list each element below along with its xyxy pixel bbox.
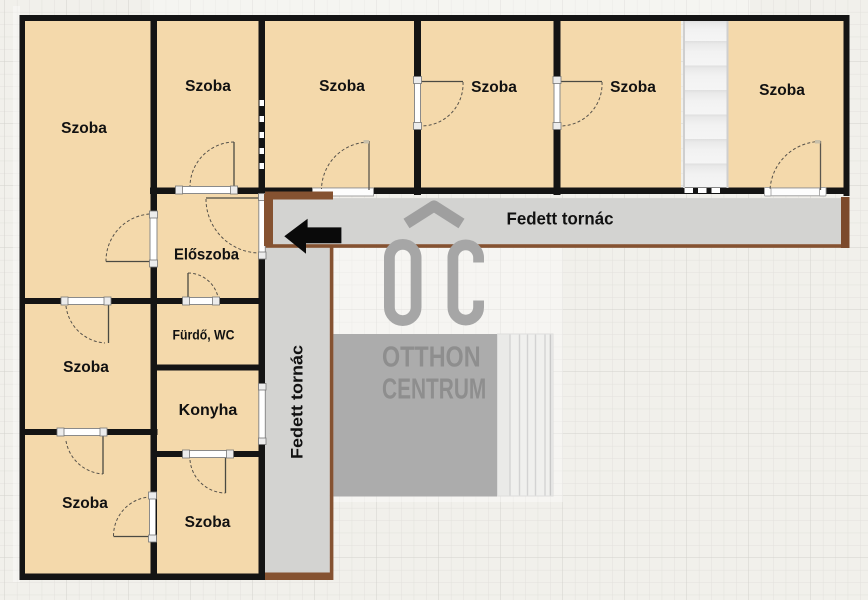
svg-text:Szoba: Szoba [610, 79, 656, 96]
svg-text:Fürdő, WC: Fürdő, WC [173, 327, 235, 343]
svg-text:OTTHON: OTTHON [382, 341, 481, 373]
svg-text:Szoba: Szoba [471, 79, 517, 96]
svg-text:Szoba: Szoba [185, 514, 231, 531]
svg-text:Fedett tornác: Fedett tornác [507, 209, 614, 229]
svg-text:CENTRUM: CENTRUM [382, 374, 486, 406]
svg-text:Szoba: Szoba [759, 82, 805, 99]
svg-text:Szoba: Szoba [185, 78, 231, 95]
svg-text:Előszoba: Előszoba [174, 247, 239, 264]
svg-text:Szoba: Szoba [62, 495, 108, 512]
svg-text:Konyha: Konyha [179, 402, 238, 419]
svg-text:Fedett tornác: Fedett tornác [288, 345, 307, 459]
svg-text:Szoba: Szoba [61, 120, 107, 137]
svg-text:Szoba: Szoba [63, 359, 109, 376]
svg-text:Szoba: Szoba [319, 78, 365, 95]
